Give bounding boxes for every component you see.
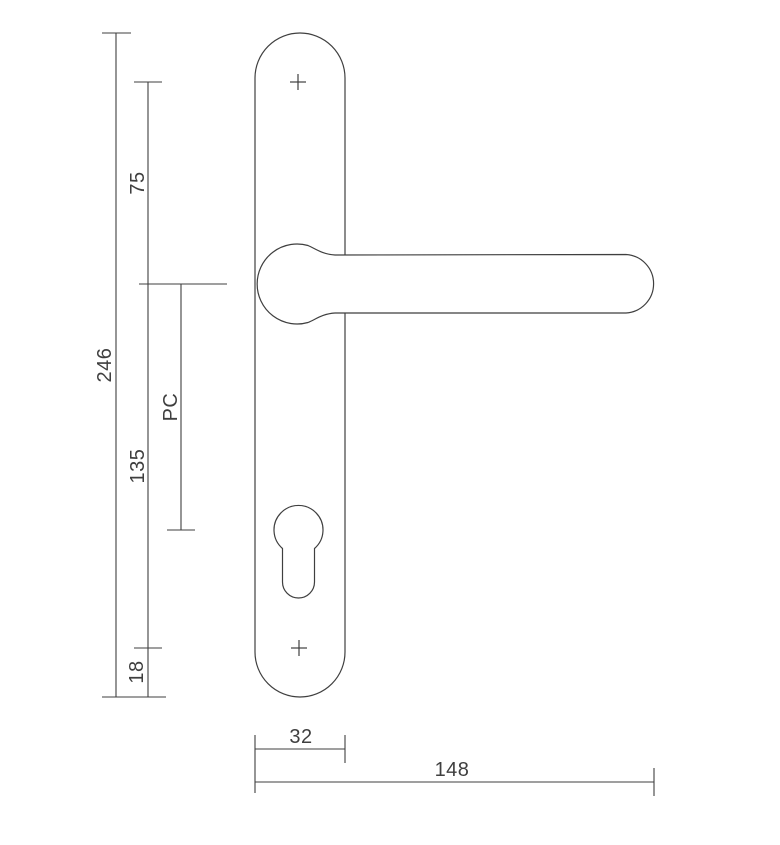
dim-label-overall-height: 246	[94, 348, 116, 383]
dim-label-plate-width: 32	[289, 726, 312, 748]
technical-drawing-canvas: 246 75 135 PC 18 32 148	[0, 0, 780, 845]
dim-label-top-to-handle: 75	[127, 171, 149, 194]
dim-label-handle-length: 148	[435, 759, 470, 781]
dimension-lines	[102, 33, 654, 796]
dim-label-pc: PC	[160, 393, 182, 422]
dim-label-handle-to-screw: 135	[127, 449, 149, 484]
door-handle-drawing-svg: 246 75 135 PC 18 32 148	[0, 0, 780, 845]
dim-label-bottom-margin: 18	[126, 660, 148, 683]
lever-handle-outline	[257, 244, 653, 324]
